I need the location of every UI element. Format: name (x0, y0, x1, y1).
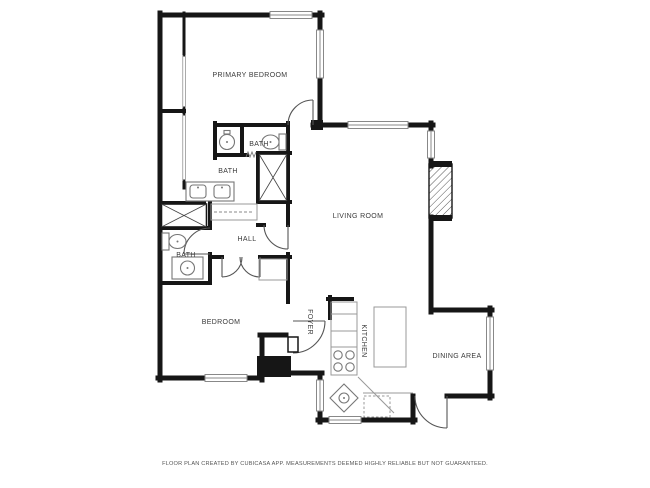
door-bedroom-closet-double (222, 257, 260, 277)
double-vanity-icon (186, 182, 234, 201)
room-label-kitchen: KITCHEN (360, 324, 367, 357)
dishwasher-icon (364, 396, 390, 417)
stove-icon (331, 347, 357, 375)
shower-left-icon (162, 204, 207, 227)
room-label-bedroom: BEDROOM (202, 319, 241, 326)
floor-plan-svg: PRIMARY BEDROOM BATH BATH HALL BATH BEDR… (0, 0, 650, 488)
room-label-bath-lower: BATH (176, 252, 196, 259)
kitchen-island (374, 307, 406, 367)
room-label-bath-primary: BATH (249, 141, 269, 148)
sink-round-icon (220, 131, 235, 150)
door-patio-exterior (415, 396, 447, 428)
door-primary-bedroom (288, 100, 313, 125)
window-living-right (428, 131, 435, 158)
floor-plan-page: PRIMARY BEDROOM BATH BATH HALL BATH BEDR… (0, 0, 650, 488)
kitchen-counter-icon (331, 302, 357, 347)
closet-rail-icon (211, 204, 257, 220)
window-primary-right (317, 30, 324, 78)
sliding-closet-doors (183, 55, 186, 181)
window-living-top (348, 122, 408, 129)
room-label-living-room: LIVING ROOM (333, 213, 384, 220)
footer-disclaimer: FLOOR PLAN CREATED BY CUBICASA APP. MEAS… (162, 461, 488, 467)
shower-upper-icon (259, 154, 287, 201)
window-kitchen-left (317, 380, 324, 411)
room-label-foyer: FOYER (306, 309, 313, 335)
wall-entry-block (257, 356, 291, 377)
room-label-bath-main: BATH (218, 168, 238, 175)
toilet-lower-icon (162, 233, 186, 250)
room-label-primary-bedroom: PRIMARY BEDROOM (212, 72, 287, 79)
window-bedroom-bottom (205, 375, 247, 382)
room-label-hall: HALL (238, 236, 257, 243)
fireplace-icon (429, 161, 452, 221)
window-primary-top (270, 12, 312, 19)
closet-niche (259, 259, 287, 280)
window-kitchen-bottom (329, 417, 361, 424)
window-dining-right (487, 317, 494, 370)
door-hall-closet (264, 225, 288, 249)
vanity-lower-icon (172, 257, 203, 279)
room-label-dining-area: DINING AREA (433, 353, 482, 360)
kitchen-corner-sink-icon (330, 377, 413, 413)
door-lower-bath (184, 228, 210, 254)
